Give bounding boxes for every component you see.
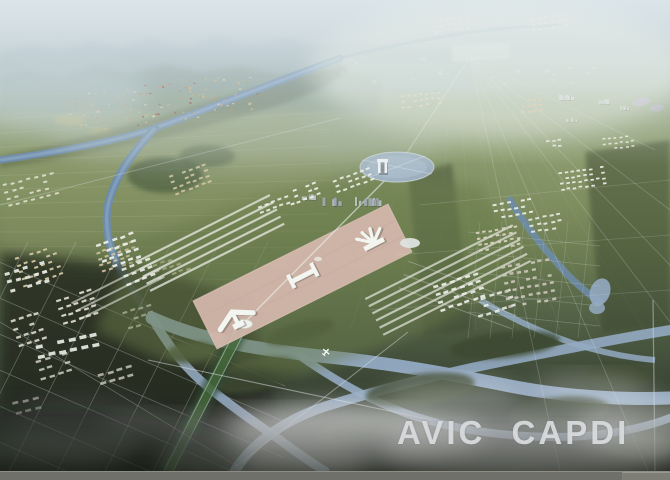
aerial-rendering-scene [0, 0, 670, 471]
atmosphere-haze [0, 0, 670, 170]
rendering-image: AVIC CAPDI [0, 0, 670, 480]
watermark-text: AVIC CAPDI [397, 414, 657, 452]
bottom-frame-bar [0, 471, 670, 480]
aerial-rendering-canvas [0, 0, 670, 471]
bottom-frame-bar-corner [622, 472, 670, 480]
